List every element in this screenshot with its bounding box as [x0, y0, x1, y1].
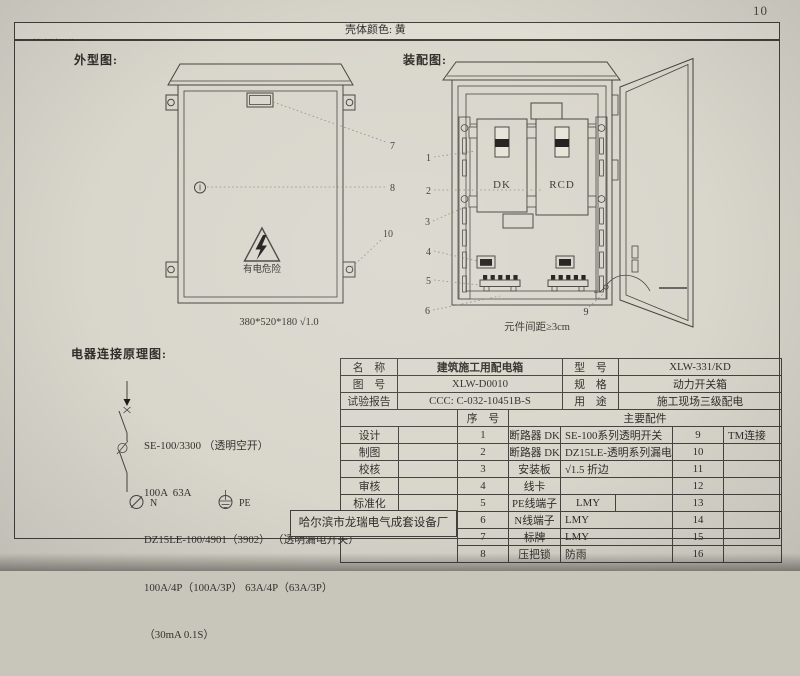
- part-desc-cell: √1.5 折边: [561, 461, 673, 478]
- part-name-cell: 断路器 DK: [509, 444, 561, 461]
- part-desc-cell: LMY: [561, 512, 673, 529]
- part-desc-cell: [561, 478, 673, 495]
- spec-line-4: 100A/4P（100A/3P） 63A/4P（63A/3P）: [144, 581, 359, 597]
- parts-table: 序 号 主要配件 设计 1 断路器 DK SE-100系列透明开关 9 TM连接…: [340, 409, 782, 563]
- info-label: 型 号: [563, 359, 619, 376]
- parts-row: 制图 2 断路器 DK DZ15LE-透明系列漏电开关 10: [341, 444, 782, 461]
- info-label: 试验报告: [341, 393, 398, 410]
- info-label: 用 途: [563, 393, 619, 410]
- sign-label-cell: 设计: [341, 427, 399, 444]
- part-name-cell: N线端子: [509, 512, 561, 529]
- parts-row: 设计 1 断路器 DK SE-100系列透明开关 9 TM连接: [341, 427, 782, 444]
- part-name-cell: 标牌: [509, 529, 561, 546]
- info-table: 名 称 建筑施工用配电箱 型 号 XLW-331/KD 图 号 XLW-D001…: [340, 358, 782, 410]
- parts-row: 校核 3 安装板 √1.5 折边 11: [341, 461, 782, 478]
- part-num-cell: 15: [673, 529, 724, 546]
- seq-cell: 5: [458, 495, 509, 512]
- spec-line-5: （30mA 0.1S）: [144, 628, 359, 644]
- part-name-cell: 线卡: [509, 478, 561, 495]
- info-row: 试验报告 CCC: C-032-10451B-S 用 途 施工现场三级配电: [341, 393, 782, 410]
- drawing-no-value: XLW-D0010: [398, 376, 563, 393]
- info-label: 名 称: [341, 359, 398, 376]
- part-num-cell: 11: [673, 461, 724, 478]
- blank-cell: [341, 410, 458, 427]
- test-report-value: CCC: C-032-10451B-S: [398, 393, 563, 410]
- schematic-spec-block: SE-100/3300 （透明空开） 100A 63A DZ15LE-100/4…: [144, 407, 359, 676]
- seq-cell: 2: [458, 444, 509, 461]
- part-num-cell: 12: [673, 478, 724, 495]
- part-desc-extra-cell: [616, 495, 673, 512]
- sign-value-cell: [399, 495, 458, 512]
- outline-title: 外型图:: [74, 51, 118, 68]
- sign-value-cell: [399, 427, 458, 444]
- box-name-value: 建筑施工用配电箱: [398, 359, 563, 376]
- part-num-cell: 13: [673, 495, 724, 512]
- part-num-cell: 16: [673, 546, 724, 563]
- sign-label-cell: 制图: [341, 444, 399, 461]
- spec-line-1: SE-100/3300 （透明空开）: [144, 439, 359, 455]
- info-label: 规 格: [563, 376, 619, 393]
- standards-bar: 执行标准: 1.GB 7251.4-20062.JGJ46-20053.GB68…: [14, 22, 780, 40]
- part-note-cell: [724, 529, 782, 546]
- manufacturer-box: 哈尔滨市龙瑞电气成套设备厂: [290, 510, 457, 537]
- part-num-cell: 10: [673, 444, 724, 461]
- seq-cell: 6: [458, 512, 509, 529]
- part-desc-cell: LMY: [561, 529, 673, 546]
- part-note-cell: TM连接: [724, 427, 782, 444]
- info-label: 图 号: [341, 376, 398, 393]
- sign-value-cell: [399, 461, 458, 478]
- spec-value: 动力开关箱: [619, 376, 782, 393]
- sign-label-cell: 标准化: [341, 495, 399, 512]
- part-note-cell: [724, 495, 782, 512]
- part-note-cell: [724, 461, 782, 478]
- part-note-cell: [724, 512, 782, 529]
- part-note-cell: [724, 546, 782, 563]
- assembly-title: 装配图:: [403, 51, 447, 68]
- shell-color-note: 壳体颜色: 黄: [345, 23, 406, 38]
- part-num-cell: 14: [673, 512, 724, 529]
- part-note-cell: [724, 444, 782, 461]
- info-row: 图 号 XLW-D0010 规 格 动力开关箱: [341, 376, 782, 393]
- use-value: 施工现场三级配电: [619, 393, 782, 410]
- part-desc-cell: DZ15LE-透明系列漏电开关: [561, 444, 673, 461]
- scanned-drawing-page: 10 执行标准: 1.GB 7251.4-20062.JGJ46-20053.G…: [0, 0, 800, 571]
- parts-row: 标准化 5 PE线端子 LMY 13: [341, 495, 782, 512]
- part-desc-cell: SE-100系列透明开关: [561, 427, 673, 444]
- spec-line-2: 100A 63A: [144, 486, 359, 502]
- part-desc-cell: 防雨: [561, 546, 673, 563]
- seq-header: 序 号: [458, 410, 509, 427]
- sign-label-cell: 校核: [341, 461, 399, 478]
- part-num-cell: 9: [673, 427, 724, 444]
- info-row: 名 称 建筑施工用配电箱 型 号 XLW-331/KD: [341, 359, 782, 376]
- seq-cell: 8: [458, 546, 509, 563]
- seq-cell: 1: [458, 427, 509, 444]
- part-name-cell: 断路器 DK: [509, 427, 561, 444]
- sign-value-cell: [399, 478, 458, 495]
- seq-cell: 7: [458, 529, 509, 546]
- part-note-cell: [724, 478, 782, 495]
- parts-header-row: 序 号 主要配件: [341, 410, 782, 427]
- seq-cell: 3: [458, 461, 509, 478]
- parts-header: 主要配件: [509, 410, 782, 427]
- sign-value-cell: [399, 444, 458, 461]
- page-number: 10: [753, 3, 768, 19]
- part-name-cell: 压把锁: [509, 546, 561, 563]
- part-desc-cell: LMY: [561, 495, 616, 512]
- part-name-cell: PE线端子: [509, 495, 561, 512]
- sign-label-cell: 审核: [341, 478, 399, 495]
- model-value: XLW-331/KD: [619, 359, 782, 376]
- seq-cell: 4: [458, 478, 509, 495]
- parts-row: 审核 4 线卡 12: [341, 478, 782, 495]
- schematic-title: 电器连接原理图:: [71, 345, 167, 362]
- part-name-cell: 安装板: [509, 461, 561, 478]
